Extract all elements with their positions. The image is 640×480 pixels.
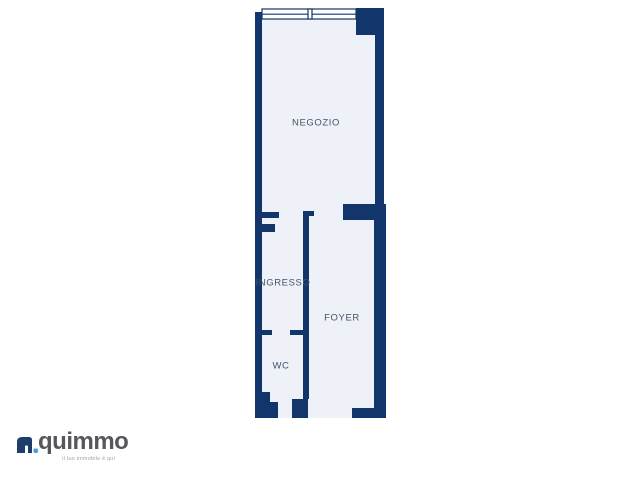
floorplan-canvas: NEGOZIO INGRESSO FOYER WC quimmo il tuo … <box>0 0 640 480</box>
wall-stub-negozio-foyer <box>343 204 386 220</box>
wall-bottom-left-block <box>255 392 270 418</box>
room-label-foyer: FOYER <box>324 313 360 324</box>
wall-stub-negozio-ingresso <box>262 212 279 218</box>
room-label-negozio: NEGOZIO <box>292 118 340 129</box>
window-mullion <box>308 9 312 19</box>
storefront-window <box>262 9 356 19</box>
wall-wc-left <box>262 330 272 335</box>
wall-central-divider <box>303 216 309 399</box>
wall-pier-ingresso <box>262 224 275 232</box>
quimmo-house-icon <box>17 437 39 454</box>
brand-tagline: il tuo immobile è qui <box>55 456 115 462</box>
wall-bottom-left-step <box>270 402 278 418</box>
wall-top-right-block <box>356 8 384 35</box>
wall-bottom-right <box>352 408 386 418</box>
wall-central-pier-bottom <box>292 399 308 418</box>
floorplan-drawing <box>0 0 640 480</box>
quimmo-logo: quimmo il tuo immobile è qui <box>17 432 137 468</box>
wall-left <box>255 12 262 418</box>
wall-wc-right <box>290 330 303 335</box>
room-label-wc: WC <box>272 361 289 372</box>
brand-name: quimmo <box>38 428 128 456</box>
room-label-ingresso: INGRESSO <box>256 278 311 289</box>
wall-right-lower <box>374 220 386 418</box>
wall-central-tick <box>303 211 314 216</box>
wall-right-upper <box>375 35 384 205</box>
